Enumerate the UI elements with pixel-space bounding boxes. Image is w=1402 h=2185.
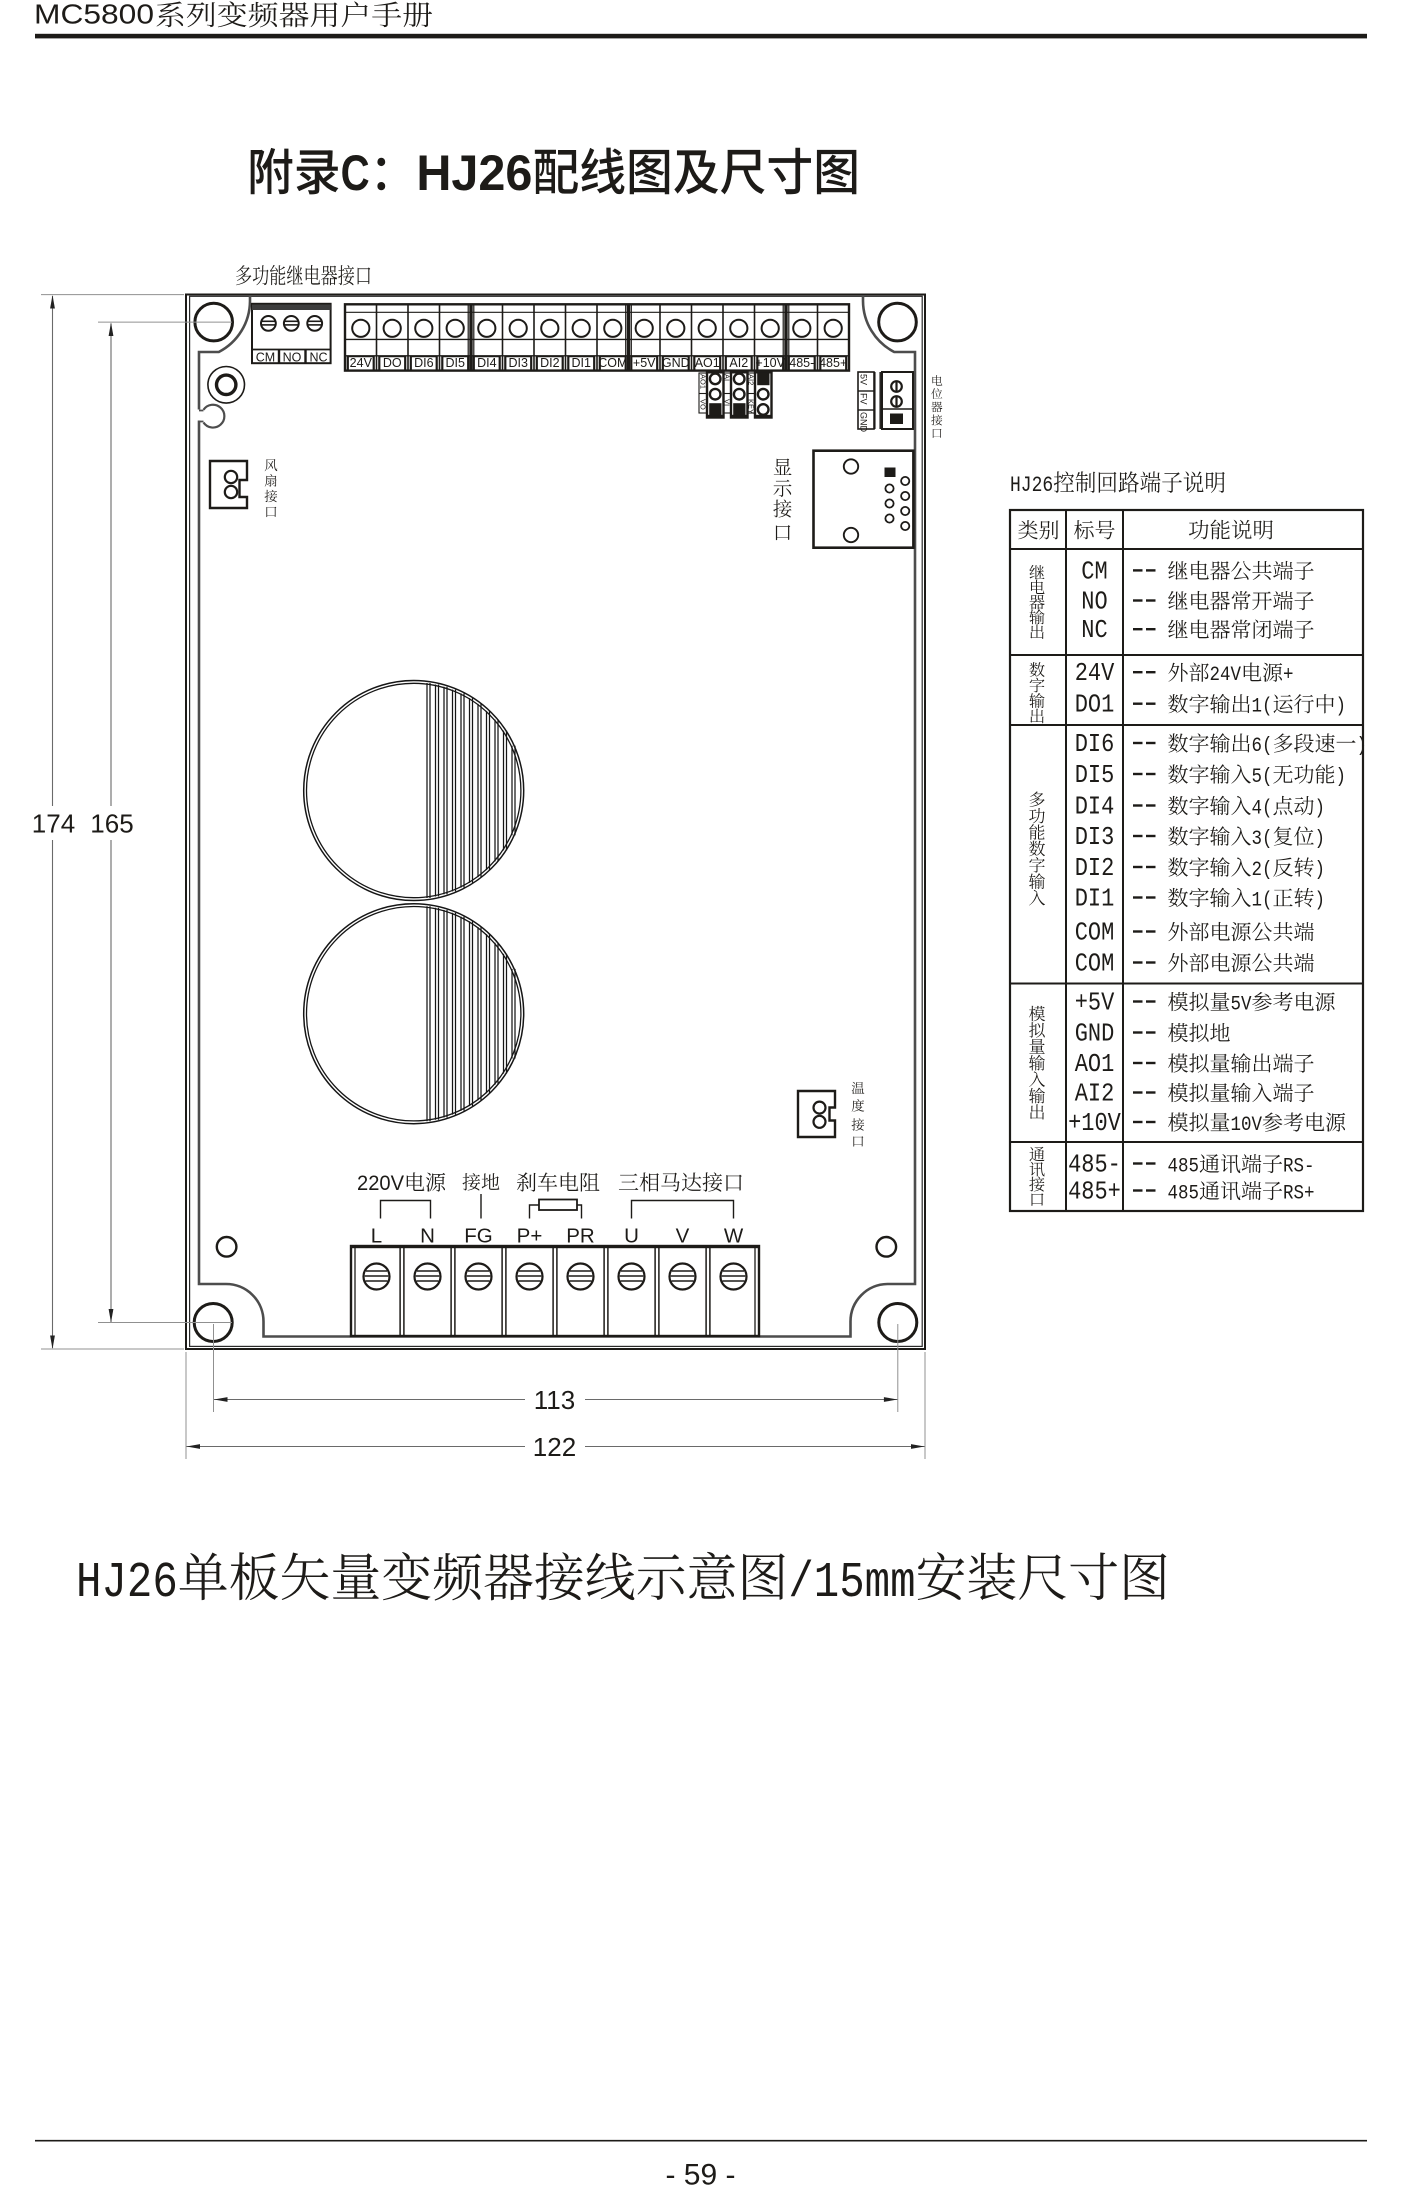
svg-text:COM: COM xyxy=(598,356,627,370)
svg-text:165: 165 xyxy=(90,809,133,839)
svg-text:122: 122 xyxy=(533,1432,576,1462)
svg-text:DI5: DI5 xyxy=(445,356,465,370)
svg-text:DO: DO xyxy=(383,356,402,370)
svg-text:485-: 485- xyxy=(1068,1150,1121,1180)
svg-text:4(: 4( xyxy=(1252,798,1273,821)
svg-text:+10V: +10V xyxy=(1068,1108,1121,1138)
svg-text:AI2: AI2 xyxy=(1075,1079,1115,1109)
svg-text:VO: VO xyxy=(699,399,708,410)
svg-text:5(: 5( xyxy=(1252,766,1273,789)
svg-text:): ) xyxy=(1336,766,1347,789)
svg-text:AI2: AI2 xyxy=(747,374,756,385)
svg-text:AI2: AI2 xyxy=(729,356,748,370)
svg-text:485+: 485+ xyxy=(819,356,847,370)
svg-text:NO: NO xyxy=(283,350,302,364)
svg-text:3(: 3( xyxy=(1252,828,1273,851)
svg-text:24V: 24V xyxy=(1210,664,1242,687)
svg-text:113: 113 xyxy=(534,1385,575,1415)
svg-text:COM: COM xyxy=(1075,918,1115,948)
svg-text:DI2: DI2 xyxy=(540,356,560,370)
svg-text:): ) xyxy=(1315,890,1326,913)
svg-text:NC: NC xyxy=(309,350,327,364)
svg-text:FV: FV xyxy=(859,393,869,405)
svg-text:DI3: DI3 xyxy=(1075,822,1115,852)
svg-text:PR: PR xyxy=(566,1225,594,1248)
svg-text:DO1: DO1 xyxy=(1075,690,1115,720)
svg-text:AO1: AO1 xyxy=(695,356,720,370)
svg-text:+10V: +10V xyxy=(755,356,785,370)
svg-text:174: 174 xyxy=(32,809,75,839)
svg-text:- 59 -: - 59 - xyxy=(665,2159,735,2185)
svg-text:1(: 1( xyxy=(1252,890,1273,913)
svg-text:AO1: AO1 xyxy=(699,374,708,389)
svg-text:24V: 24V xyxy=(1075,658,1115,688)
svg-text:DI4: DI4 xyxy=(477,356,497,370)
svg-text:+5V: +5V xyxy=(1075,988,1115,1018)
svg-text:RS-: RS- xyxy=(1283,1156,1315,1179)
svg-text:/15mm: /15mm xyxy=(788,1555,915,1612)
svg-text:RS+: RS+ xyxy=(1283,1183,1315,1206)
svg-text:NC: NC xyxy=(1081,615,1107,645)
svg-text:CM: CM xyxy=(1081,556,1107,586)
svg-text:): ) xyxy=(1315,798,1326,821)
svg-text:DI4: DI4 xyxy=(1075,792,1115,822)
svg-text:W: W xyxy=(724,1225,744,1248)
svg-text:1(: 1( xyxy=(1252,696,1273,719)
svg-text:CM: CM xyxy=(256,350,275,364)
svg-text:GND: GND xyxy=(859,412,869,433)
svg-text:NO: NO xyxy=(1081,587,1107,617)
svg-text:P+: P+ xyxy=(517,1225,543,1248)
svg-text:485: 485 xyxy=(1168,1156,1200,1179)
svg-text:C: C xyxy=(341,146,370,202)
svg-text:U: U xyxy=(624,1225,639,1248)
svg-text:DI1: DI1 xyxy=(1075,884,1115,914)
svg-text:FG: FG xyxy=(464,1225,492,1248)
svg-text:KEY: KEY xyxy=(747,399,756,414)
svg-text:+5V: +5V xyxy=(633,356,656,370)
svg-text:6(: 6( xyxy=(1252,735,1273,758)
svg-text:V: V xyxy=(676,1225,690,1248)
svg-text:DI1: DI1 xyxy=(571,356,591,370)
svg-text:DI3: DI3 xyxy=(508,356,528,370)
svg-text:485-: 485- xyxy=(789,356,814,370)
svg-text:N: N xyxy=(420,1225,435,1248)
svg-text:485+: 485+ xyxy=(1068,1177,1121,1207)
svg-text:L: L xyxy=(371,1225,382,1248)
svg-text:10V: 10V xyxy=(1231,1114,1263,1137)
svg-text:HJ26: HJ26 xyxy=(1010,472,1053,498)
svg-text:485: 485 xyxy=(1168,1183,1200,1206)
svg-text:2(: 2( xyxy=(1252,859,1273,882)
svg-text:VI: VI xyxy=(723,399,732,406)
svg-text:HJ26: HJ26 xyxy=(416,146,532,202)
svg-text:MC5800: MC5800 xyxy=(34,0,154,30)
svg-text:GND: GND xyxy=(662,356,690,370)
svg-text:5V: 5V xyxy=(1231,994,1252,1017)
svg-text:+: + xyxy=(1283,664,1294,687)
svg-text:): ) xyxy=(1336,696,1347,719)
svg-text:DI5: DI5 xyxy=(1075,760,1115,790)
svg-text:DI2: DI2 xyxy=(1075,853,1115,883)
svg-text:GND: GND xyxy=(1075,1019,1115,1049)
svg-text:DI6: DI6 xyxy=(414,356,434,370)
svg-text:24V: 24V xyxy=(350,356,373,370)
svg-text:AO1: AO1 xyxy=(1075,1049,1115,1079)
svg-text:220V: 220V xyxy=(357,1172,404,1195)
svg-text:): ) xyxy=(1357,735,1368,758)
svg-text:AI: AI xyxy=(723,374,732,381)
svg-text:): ) xyxy=(1315,859,1326,882)
svg-text:HJ26: HJ26 xyxy=(76,1555,178,1612)
svg-text:): ) xyxy=(1315,828,1326,851)
svg-text:COM: COM xyxy=(1075,949,1115,979)
svg-text:DI6: DI6 xyxy=(1075,729,1115,759)
svg-text:5V: 5V xyxy=(859,374,869,385)
